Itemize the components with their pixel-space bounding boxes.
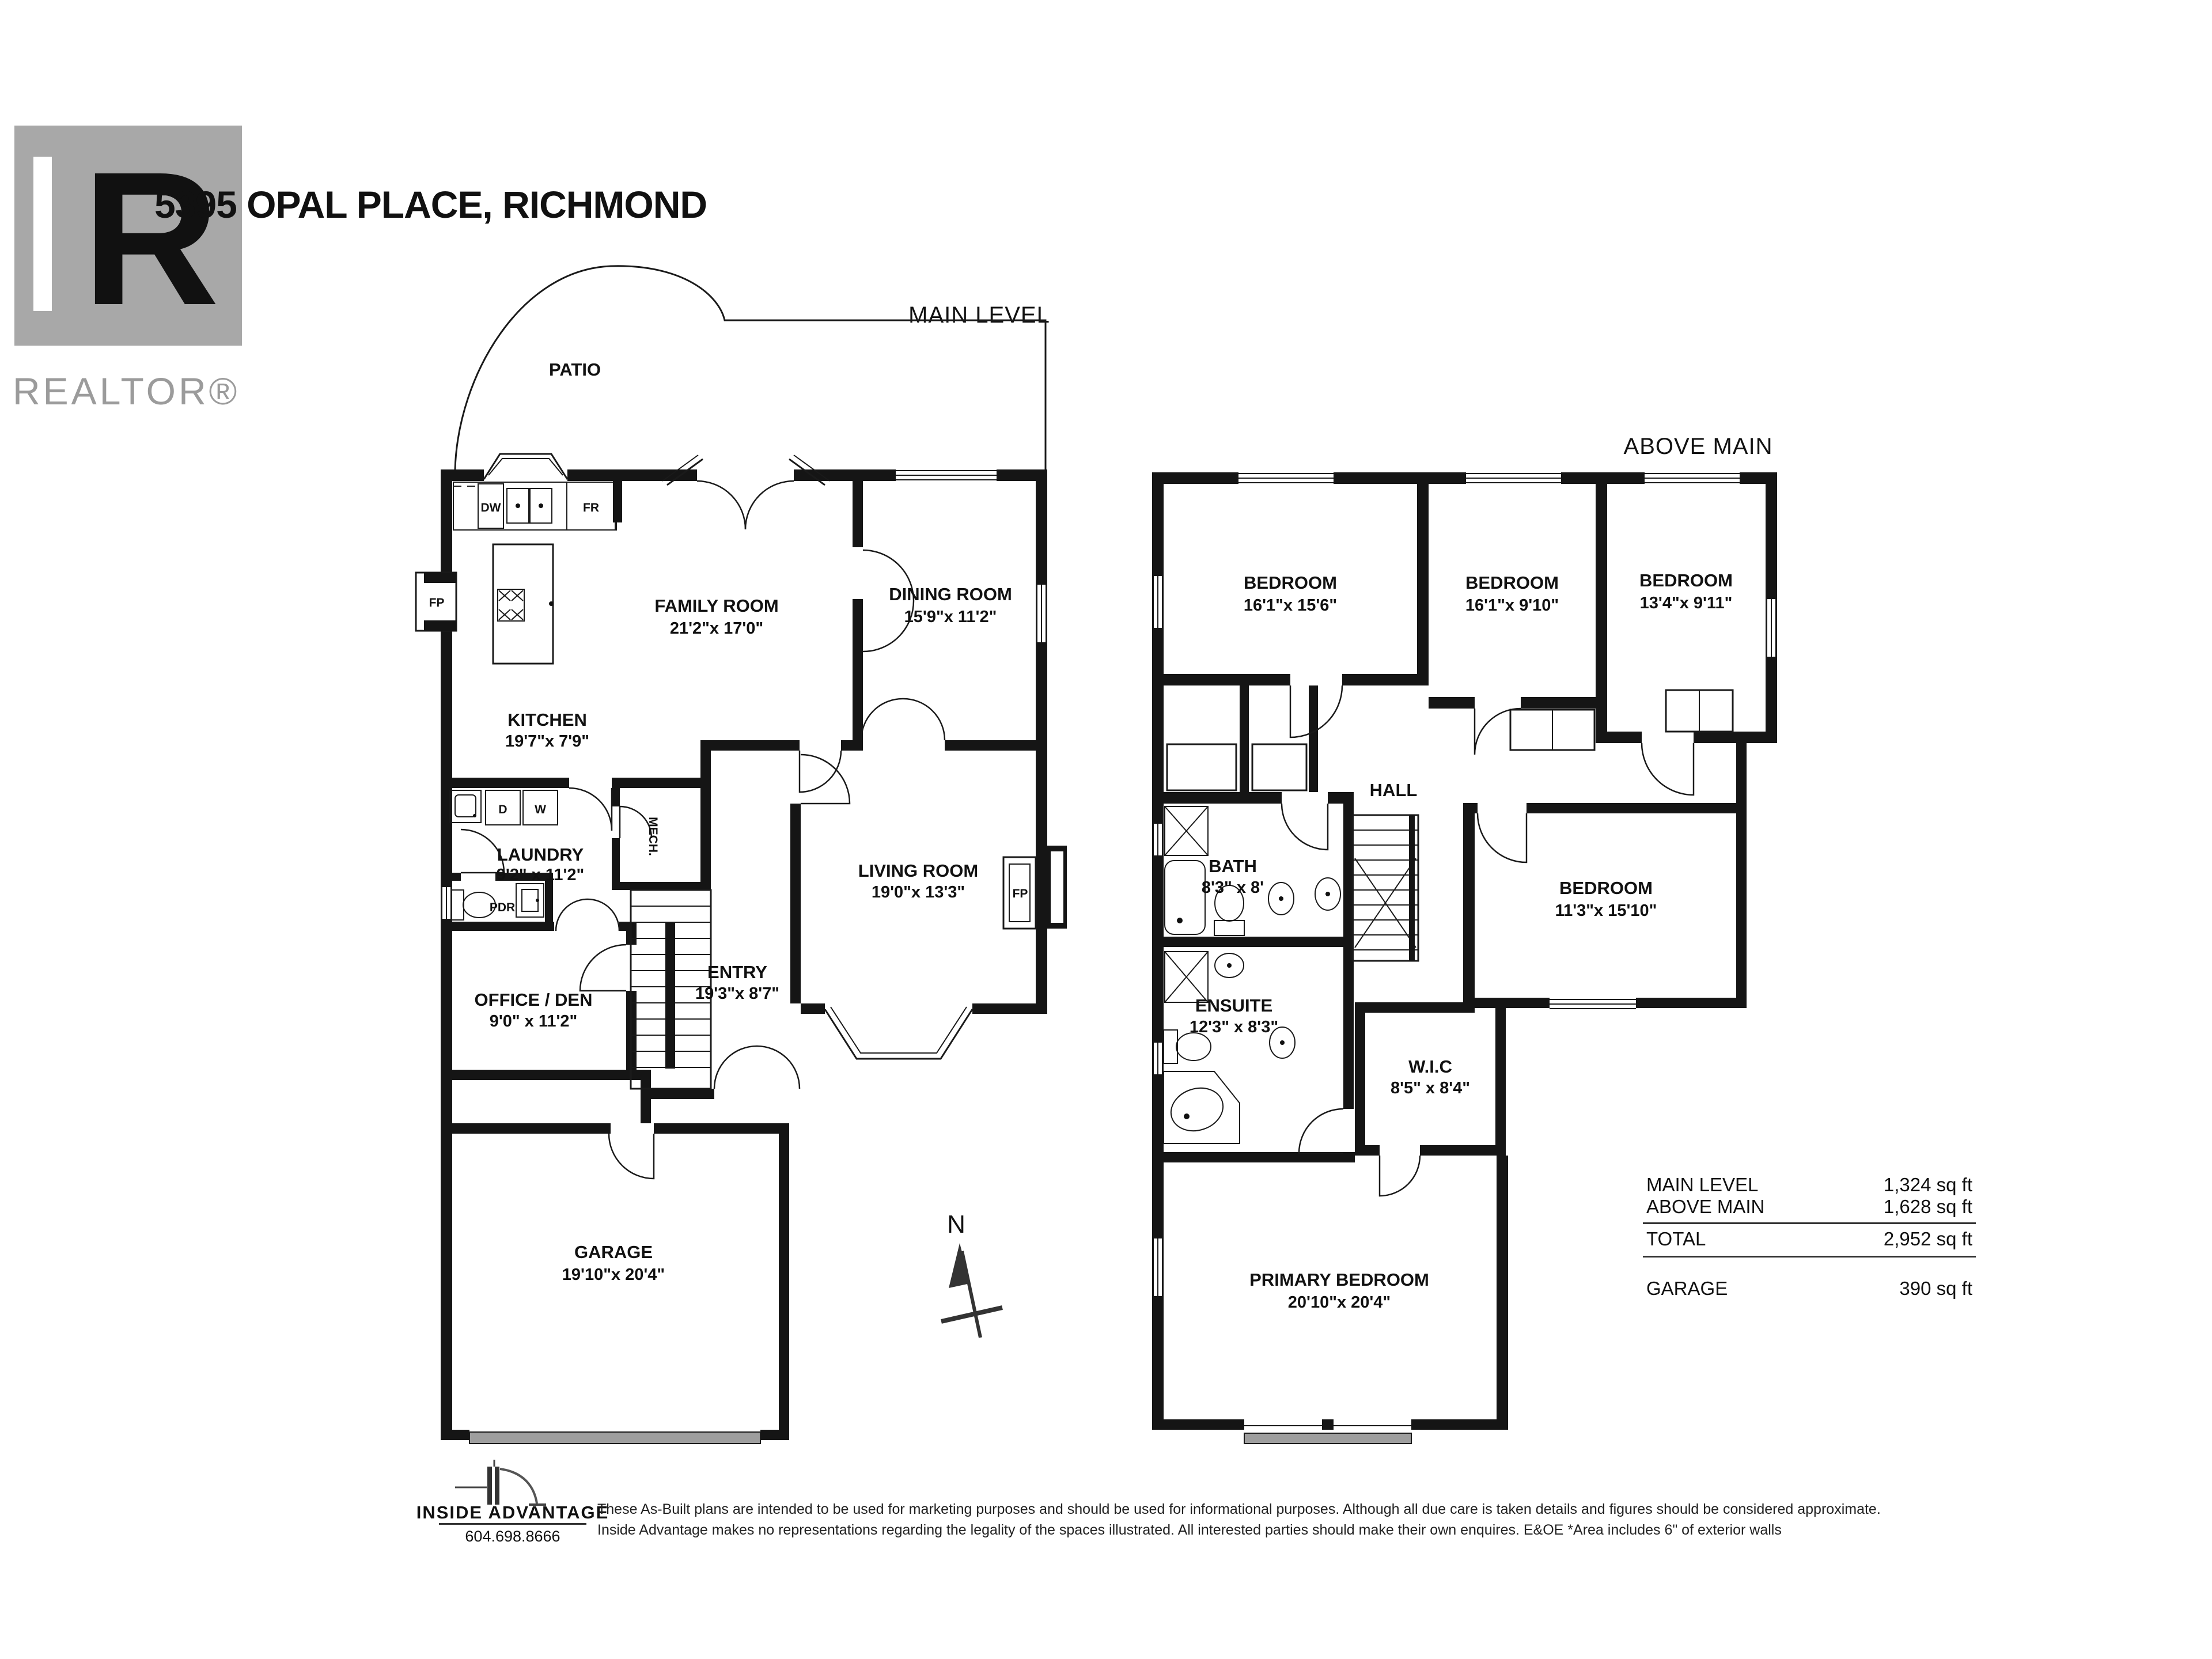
area-garage-label: GARAGE	[1646, 1278, 1728, 1299]
garage-label: GARAGE	[574, 1242, 653, 1262]
entry-label: ENTRY	[707, 962, 767, 982]
disclaimer: These As-Built plans are intended to be …	[597, 1501, 1881, 1538]
area-garage-value: 390 sq ft	[1899, 1278, 1972, 1299]
bedroom1-dims: 16'1"x 15'6"	[1244, 596, 1337, 615]
fridge-label: FR	[583, 501, 599, 514]
bedroom1-top-window	[1238, 474, 1334, 483]
dining-room-dims: 15'9"x 11'2"	[904, 608, 997, 626]
bath-label: BATH	[1209, 856, 1257, 876]
laundry-appliances: D W	[450, 790, 558, 825]
ensuite-left-window	[1154, 1043, 1162, 1074]
bedroom3-door	[1642, 743, 1694, 795]
bedroom4-label: BEDROOM	[1559, 878, 1653, 898]
kitchen-bay-window	[484, 454, 567, 479]
area-main-label: MAIN LEVEL	[1646, 1174, 1758, 1195]
dining-room-label: DINING ROOM	[889, 584, 1012, 604]
cooktop	[498, 589, 524, 621]
dining-right-window	[1037, 585, 1046, 642]
area-above-label: ABOVE MAIN	[1646, 1196, 1764, 1217]
hall-label: HALL	[1370, 780, 1418, 800]
ensuite-door	[1299, 1109, 1343, 1153]
realtor-wordmark: REALTOR®	[13, 370, 240, 412]
door-swing-icon	[455, 1460, 546, 1505]
primary-left-window	[1154, 1238, 1162, 1296]
disclaimer-line-1: These As-Built plans are intended to be …	[597, 1501, 1881, 1517]
garage-dims: 19'10"x 20'4"	[562, 1266, 665, 1284]
brand-name: INSIDE ADVANTAGE	[416, 1502, 609, 1522]
bedroom1-label: BEDROOM	[1244, 573, 1337, 593]
dining-arch-doors	[861, 699, 945, 740]
bedroom3-right-window	[1767, 599, 1775, 657]
bath-left-window	[1154, 824, 1162, 855]
wic-dims: 8'5" x 8'4"	[1391, 1079, 1470, 1097]
kitchen-island	[493, 544, 554, 664]
office-den-label: OFFICE / DEN	[475, 990, 593, 1010]
washer-label: W	[535, 803, 546, 816]
table-divider-1	[1643, 1222, 1976, 1224]
laundry-dims: 9'2" x 11'2"	[497, 866, 585, 884]
wic-door	[1380, 1156, 1420, 1196]
kitchen-fp-label: FP	[429, 596, 445, 609]
patio-outline	[455, 266, 1046, 469]
inside-advantage-logo: INSIDE ADVANTAGE 604.698.8666	[416, 1460, 609, 1545]
ensuite-dims: 12'3" x 8'3"	[1190, 1018, 1278, 1036]
bedroom2-dims: 16'1"x 9'10"	[1465, 596, 1559, 615]
north-arrow: N	[941, 1210, 1002, 1338]
entry-dims: 19'3"x 8'7"	[695, 984, 779, 1003]
laundry-door	[569, 788, 612, 831]
patio-label: PATIO	[549, 359, 601, 380]
living-fireplace: FP	[1003, 846, 1067, 929]
bedroom2-label: BEDROOM	[1465, 573, 1559, 593]
bedroom3-top-window	[1645, 474, 1740, 483]
living-bay-window	[825, 1007, 972, 1059]
dryer-label: D	[498, 803, 507, 816]
hall-stairs	[1353, 815, 1418, 961]
area-main-value: 1,324 sq ft	[1884, 1174, 1972, 1195]
realtor-logo-bar	[33, 157, 52, 311]
bedroom2-door	[1475, 709, 1521, 755]
primary-bedroom-label: PRIMARY BEDROOM	[1249, 1270, 1429, 1290]
brand-underline	[439, 1523, 586, 1525]
kitchen-fireplace: FP	[416, 573, 456, 631]
realtor-logo: R REALTOR®	[13, 126, 242, 412]
wic-label: W.I.C	[1408, 1056, 1452, 1077]
area-table: MAIN LEVEL 1,324 sq ft ABOVE MAIN 1,628 …	[1643, 1174, 1976, 1299]
laundry-left-window	[442, 887, 450, 919]
living-room-dims: 19'0"x 13'3"	[872, 883, 965, 902]
disclaimer-line-2: Inside Advantage makes no representation…	[597, 1522, 1782, 1538]
main-level-title: MAIN LEVEL	[908, 302, 1050, 328]
primary-bedroom-dims: 20'10"x 20'4"	[1288, 1293, 1391, 1312]
north-arrowhead	[949, 1243, 970, 1288]
bedroom3-label: BEDROOM	[1639, 570, 1733, 590]
north-label: N	[947, 1210, 965, 1238]
family-arch-doors	[662, 455, 829, 529]
garage-door	[469, 1432, 760, 1444]
above-main-title: ABOVE MAIN	[1624, 434, 1773, 459]
bath-door	[1282, 804, 1328, 850]
family-room-label: FAMILY ROOM	[654, 596, 778, 616]
living-door	[801, 755, 850, 804]
ensuite-label: ENSUITE	[1195, 995, 1272, 1016]
kitchen-counter: DW FR	[453, 481, 622, 530]
family-room-dims: 21'2"x 17'0"	[670, 619, 763, 638]
kitchen-label: KITCHEN	[507, 710, 587, 730]
bedroom3-dims: 13'4"x 9'11"	[1640, 594, 1733, 612]
laundry-french-doors	[556, 899, 619, 931]
area-total-label: TOTAL	[1646, 1228, 1706, 1249]
area-above-value: 1,628 sq ft	[1884, 1196, 1972, 1217]
pdr-label: PDR	[490, 901, 515, 914]
office-door	[580, 945, 626, 991]
bedroom2-top-window	[1466, 474, 1561, 483]
garage-entry-door	[609, 1134, 654, 1179]
bedroom4-bottom-window	[1550, 999, 1636, 1009]
area-total-value: 2,952 sq ft	[1884, 1228, 1972, 1249]
bedroom4-door	[1478, 813, 1527, 862]
mech-label: MECH.	[646, 817, 660, 856]
front-door	[714, 1046, 800, 1089]
ensuite-fixtures	[1164, 952, 1295, 1143]
family-entry-door	[800, 751, 841, 792]
office-den-dims: 9'0" x 11'2"	[490, 1012, 578, 1031]
living-fp-label: FP	[1013, 887, 1028, 900]
brand-phone: 604.698.8666	[465, 1528, 560, 1545]
living-room-label: LIVING ROOM	[858, 861, 978, 881]
page-title: 5395 OPAL PLACE, RICHMOND	[154, 183, 707, 226]
bath-dims: 8'3" x 8'	[1202, 878, 1264, 897]
main-level-labels: FAMILY ROOM 21'2"x 17'0" DINING ROOM 15'…	[475, 584, 1012, 1284]
bedroom1-left-window	[1154, 576, 1162, 628]
dishwasher-label: DW	[481, 501, 501, 514]
floor-plan-page: R REALTOR® 5395 OPAL PLACE, RICHMOND MAI…	[0, 0, 2212, 1659]
realtor-logo-r: R	[82, 132, 219, 344]
dining-top-window	[896, 471, 997, 480]
laundry-label: LAUNDRY	[497, 844, 584, 865]
table-divider-2	[1643, 1256, 1976, 1257]
bedroom4-dims: 11'3"x 15'10"	[1555, 902, 1657, 920]
kitchen-dims: 19'7"x 7'9"	[505, 732, 589, 751]
